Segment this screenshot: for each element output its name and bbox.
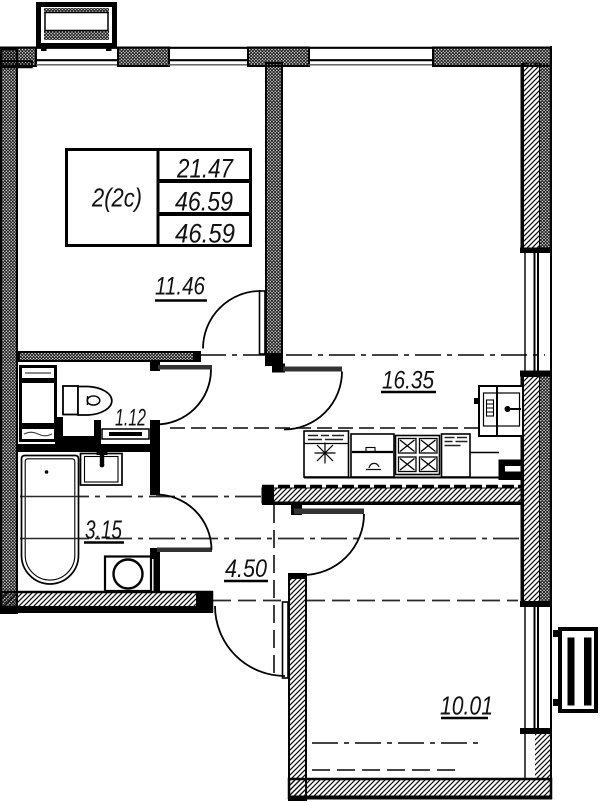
- svg-text:10.01: 10.01: [440, 691, 493, 721]
- svg-text:2(2c): 2(2c): [91, 183, 142, 213]
- svg-text:11.46: 11.46: [155, 273, 205, 301]
- svg-text:46.59: 46.59: [175, 219, 235, 249]
- svg-text:16.35: 16.35: [382, 367, 434, 395]
- svg-text:3.15: 3.15: [85, 515, 122, 545]
- svg-text:46.59: 46.59: [175, 187, 233, 217]
- svg-text:4.50: 4.50: [225, 555, 267, 583]
- svg-text:21.47: 21.47: [176, 154, 234, 184]
- svg-text:1.12: 1.12: [115, 405, 146, 432]
